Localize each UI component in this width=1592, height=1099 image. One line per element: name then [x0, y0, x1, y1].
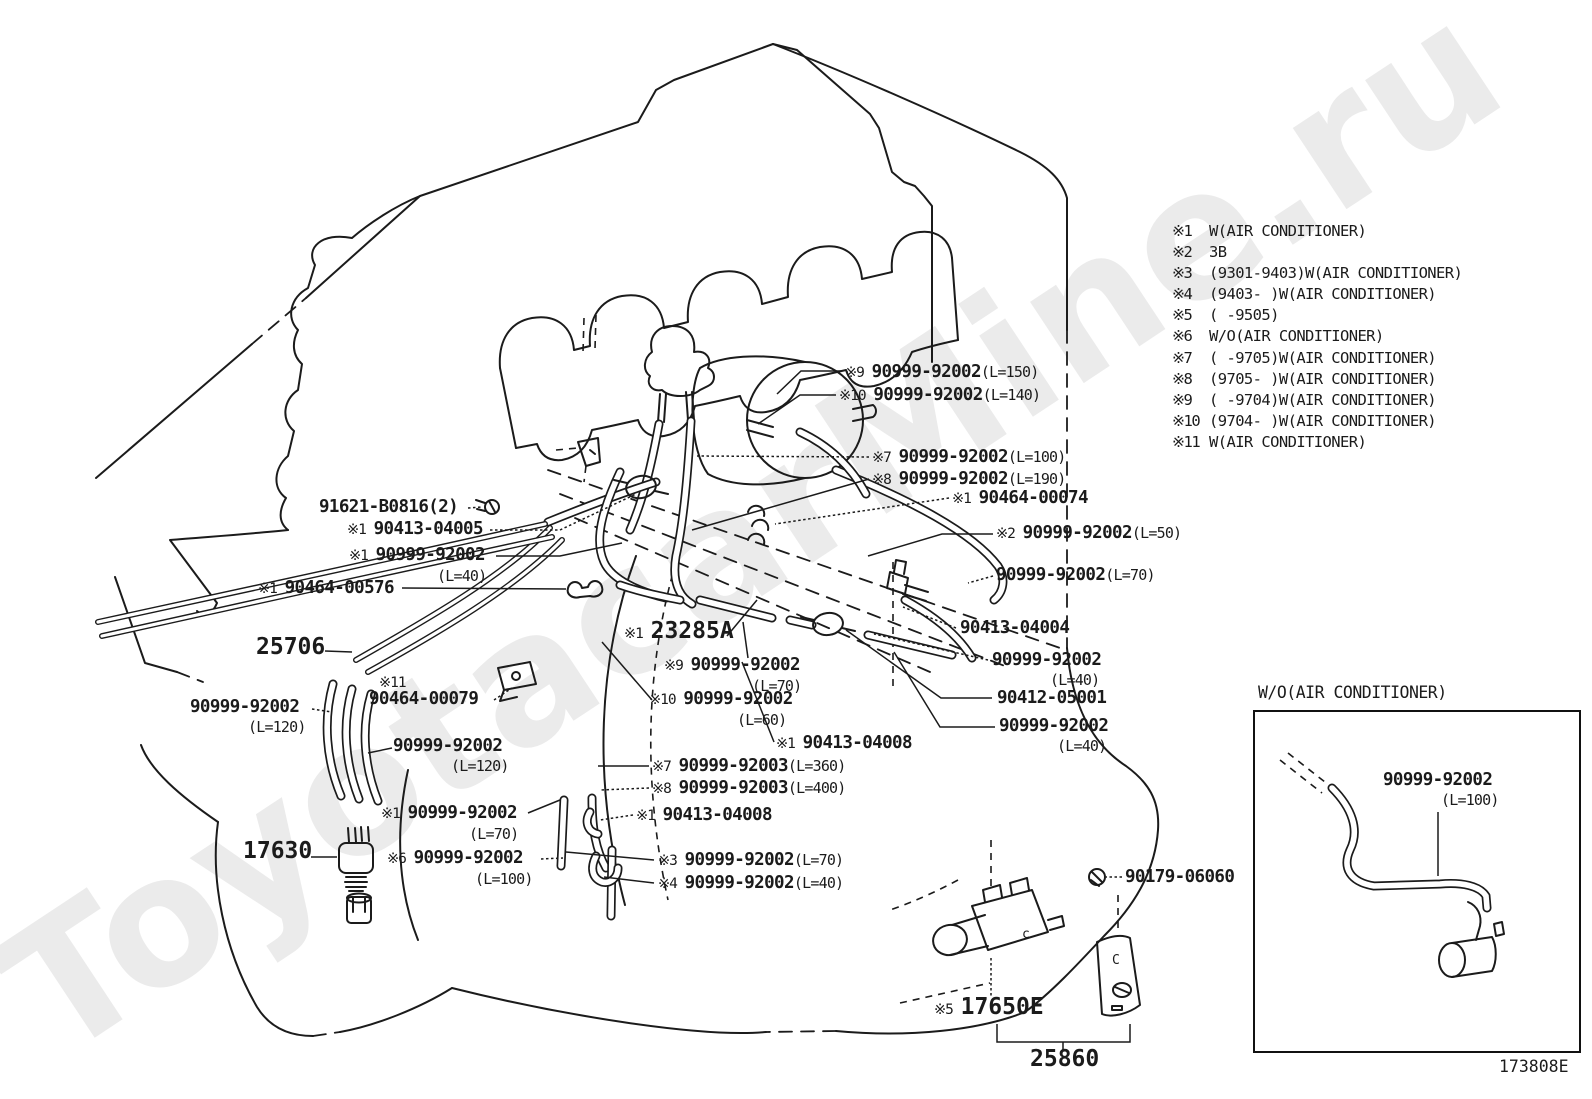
part-callout: 90412-05001	[997, 688, 1106, 709]
part-number: 25706	[256, 634, 325, 660]
part-callout: 90464-00079	[369, 689, 478, 710]
part-callout: ※6 90999-92002(L=100)	[387, 848, 533, 889]
part-number: 90999-92002	[999, 716, 1108, 736]
legend-item: ※1W(AIR CONDITIONER)	[1172, 221, 1462, 242]
part-callout: 17630	[243, 841, 312, 864]
legend-item: ※9( -9704)W(AIR CONDITIONER)	[1172, 390, 1462, 411]
svg-text:c: c	[1022, 927, 1030, 942]
part-callout: 91621-B0816(2)	[319, 497, 458, 518]
ref-mark: ※4	[658, 876, 685, 892]
part-number: 90999-92002	[376, 545, 485, 565]
ref-mark: ※1	[1172, 221, 1209, 242]
ref-mark: ※9	[664, 658, 691, 674]
part-number: 90999-92003	[679, 778, 788, 798]
legend-text: ( -9505)	[1209, 305, 1279, 326]
part-number: 90464-00079	[369, 689, 478, 709]
ref-mark: ※1	[636, 808, 663, 824]
part-number: 90412-05001	[997, 688, 1106, 708]
ref-mark: ※9	[1172, 390, 1209, 411]
part-callout: ※1 23285A	[624, 621, 734, 645]
ref-mark: ※1	[347, 522, 374, 538]
part-number: 90999-92002	[899, 447, 1008, 467]
legend-item: ※6W/O(AIR CONDITIONER)	[1172, 326, 1462, 347]
part-callout: ※1 90413-04005	[347, 519, 483, 541]
legend-text: ( -9704)W(AIR CONDITIONER)	[1209, 390, 1436, 411]
hose-length: (L=60)	[737, 711, 793, 730]
legend-item: ※3(9301-9403)W(AIR CONDITIONER)	[1172, 263, 1462, 284]
part-callout: ※10 90999-92002(L=140)	[839, 385, 1040, 407]
legend-item: ※10(9704- )W(AIR CONDITIONER)	[1172, 411, 1462, 432]
ref-mark: ※1	[624, 626, 651, 642]
part-number: 90999-92003	[679, 756, 788, 776]
part-callout: ※7 90999-92003(L=360)	[652, 756, 846, 778]
ref-mark: ※1	[349, 548, 376, 564]
ref-mark: ※5	[1172, 305, 1209, 326]
part-callout: 90413-04004	[960, 618, 1069, 639]
part-callout: 25706	[256, 637, 325, 660]
legend-item: ※4(9403- )W(AIR CONDITIONER)	[1172, 284, 1462, 305]
part-number: 90999-92002	[1023, 523, 1132, 543]
hose-length: (L=70)	[794, 851, 843, 869]
ref-mark: ※7	[1172, 348, 1209, 369]
part-number: 90464-00576	[285, 578, 394, 598]
legend-item: ※5( -9505)	[1172, 305, 1462, 326]
part-callout: ※3 90999-92002(L=70)	[658, 850, 843, 872]
part-callout: 90999-92002(L=120)	[393, 736, 509, 776]
part-callout: 90179-06060	[1125, 867, 1234, 888]
inset-title: W/O(AIR CONDITIONER)	[1258, 683, 1447, 702]
hose-length: (L=40)	[1057, 737, 1108, 756]
part-callout: ※8 90999-92003(L=400)	[652, 778, 846, 800]
part-number: 17650E	[961, 994, 1044, 1020]
part-number: 90413-04008	[663, 805, 772, 825]
hose-length: (L=50)	[1132, 524, 1181, 542]
part-number: 90999-92002	[685, 850, 794, 870]
svg-text:C: C	[1112, 953, 1120, 968]
ref-mark: ※1	[381, 806, 408, 822]
ref-mark: ※10	[1172, 411, 1209, 432]
part-number: 90999-92002	[992, 650, 1101, 670]
legend-notes: ※1W(AIR CONDITIONER)※23B※3(9301-9403)W(A…	[1172, 221, 1462, 453]
part-number: 90999-92002	[683, 689, 792, 709]
part-number: 90179-06060	[1125, 867, 1234, 887]
hose-length: (L=70)	[1105, 566, 1154, 584]
part-callout: ※1 90464-00576	[258, 578, 394, 600]
part-callout: ※10 90999-92002(L=60)	[649, 689, 793, 730]
part-callout: ※7 90999-92002(L=100)	[872, 447, 1066, 469]
part-callout: ※1 90413-04008	[776, 733, 912, 755]
hose-length: (L=150)	[981, 363, 1039, 381]
part-number: 91621-B0816(2)	[319, 497, 458, 517]
ref-mark: ※10	[649, 692, 683, 708]
ref-mark: ※7	[652, 759, 679, 775]
hose-length: (L=360)	[788, 757, 846, 775]
ref-mark: ※3	[658, 853, 685, 869]
legend-text: 3B	[1209, 242, 1226, 263]
legend-text: (9705- )W(AIR CONDITIONER)	[1209, 369, 1436, 390]
part-number: 90999-92002	[190, 697, 299, 717]
part-callout: ※4 90999-92002(L=40)	[658, 873, 843, 895]
part-number: 90999-92002	[414, 848, 523, 868]
hose-length: (L=100)	[475, 870, 533, 889]
part-number: 90464-00074	[979, 488, 1088, 508]
ref-mark: ※8	[652, 781, 679, 797]
legend-text: ( -9705)W(AIR CONDITIONER)	[1209, 348, 1436, 369]
inset-box	[1253, 710, 1581, 1053]
part-callout: ※5 17650E	[934, 997, 1044, 1021]
legend-text: (9301-9403)W(AIR CONDITIONER)	[1209, 263, 1462, 284]
ref-mark: ※8	[1172, 369, 1209, 390]
ref-mark: ※7	[872, 450, 899, 466]
hose-length: (L=400)	[788, 779, 846, 797]
part-callout: ※1 90413-04008	[636, 805, 772, 827]
ref-mark: ※3	[1172, 263, 1209, 284]
ref-mark: ※9	[845, 365, 872, 381]
ref-mark: ※1	[258, 581, 285, 597]
legend-item: ※7( -9705)W(AIR CONDITIONER)	[1172, 348, 1462, 369]
hose-length: (L=40)	[794, 874, 843, 892]
drawing-number-label: 173808E	[1499, 1057, 1569, 1076]
ref-mark: ※11	[1172, 432, 1209, 453]
part-callout: 25860	[1030, 1049, 1099, 1072]
part-callout: 90999-92002(L=40)	[999, 716, 1108, 756]
part-number: 90999-92002	[408, 803, 517, 823]
hose-length: (L=40)	[437, 567, 486, 586]
ref-mark: ※4	[1172, 284, 1209, 305]
ref-mark: ※10	[839, 388, 873, 404]
part-number: 90999-92002	[899, 469, 1008, 489]
part-number: 90999-92002	[685, 873, 794, 893]
legend-item: ※23B	[1172, 242, 1462, 263]
legend-text: W/O(AIR CONDITIONER)	[1209, 326, 1384, 347]
legend-text: (9403- )W(AIR CONDITIONER)	[1209, 284, 1436, 305]
part-number: 25860	[1030, 1046, 1099, 1072]
legend-text: W(AIR CONDITIONER)	[1209, 221, 1366, 242]
hose-length: (L=120)	[248, 718, 306, 737]
hose-length: (L=190)	[1008, 470, 1066, 488]
part-callout: ※2 90999-92002(L=50)	[996, 523, 1181, 545]
part-callout: ※1 90999-92002(L=70)	[381, 803, 518, 844]
part-callout: 90999-92002(L=120)	[190, 697, 306, 737]
part-callout: 90999-92002(L=70)	[996, 565, 1155, 586]
ref-mark: ※1	[952, 491, 979, 507]
part-number: 23285A	[651, 618, 734, 644]
part-number: 90413-04004	[960, 618, 1069, 638]
part-number: 17630	[243, 838, 312, 864]
hose-length: (L=120)	[451, 757, 509, 776]
parts-diagram-stage: ToyotacarMine.ru	[0, 0, 1592, 1099]
part-number: 90999-92002	[873, 385, 982, 405]
ref-mark: ※5	[934, 1002, 961, 1018]
part-number: 90413-04005	[374, 519, 483, 539]
part-number: 90999-92002	[872, 362, 981, 382]
legend-text: W(AIR CONDITIONER)	[1209, 432, 1366, 453]
ref-mark: ※8	[872, 472, 899, 488]
part-callout: ※1 90464-00074	[952, 488, 1088, 510]
part-callout: 90999-92002(L=40)	[992, 650, 1101, 690]
hose-length: (L=140)	[983, 386, 1041, 404]
legend-item: ※11W(AIR CONDITIONER)	[1172, 432, 1462, 453]
legend-text: (9704- )W(AIR CONDITIONER)	[1209, 411, 1436, 432]
part-number: 90999-92002	[691, 655, 800, 675]
hose-length: (L=70)	[469, 825, 518, 844]
ref-mark: ※6	[1172, 326, 1209, 347]
part-number: 90999-92002	[393, 736, 502, 756]
ref-mark: ※2	[996, 526, 1023, 542]
legend-item: ※8(9705- )W(AIR CONDITIONER)	[1172, 369, 1462, 390]
part-callout: ※9 90999-92002(L=150)	[845, 362, 1039, 384]
hose-length: (L=100)	[1008, 448, 1066, 466]
part-number: 90999-92002	[996, 565, 1105, 585]
ref-mark: ※2	[1172, 242, 1209, 263]
part-number: 90413-04008	[803, 733, 912, 753]
ref-mark: ※6	[387, 851, 414, 867]
ref-mark: ※1	[776, 736, 803, 752]
